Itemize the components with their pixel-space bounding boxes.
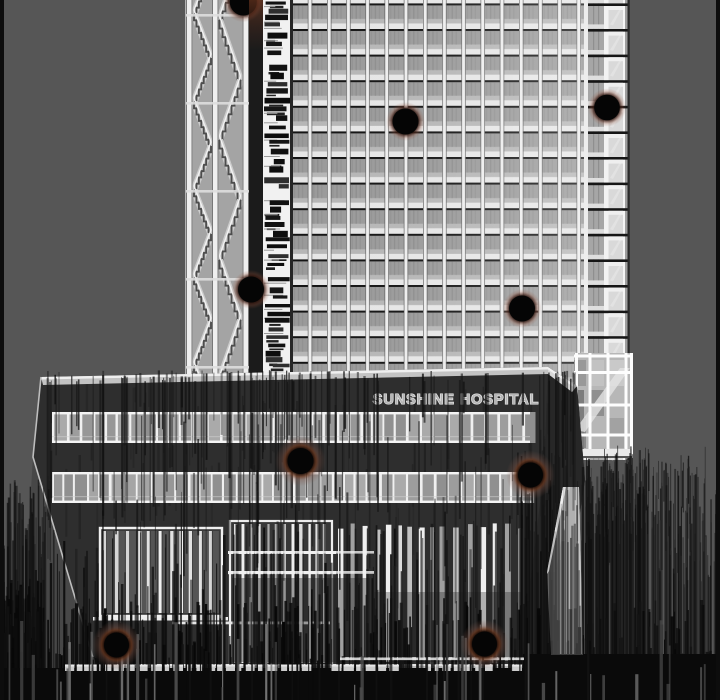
svg-text:SUNSHINE HOSPITAL: SUNSHINE HOSPITAL — [373, 392, 540, 408]
